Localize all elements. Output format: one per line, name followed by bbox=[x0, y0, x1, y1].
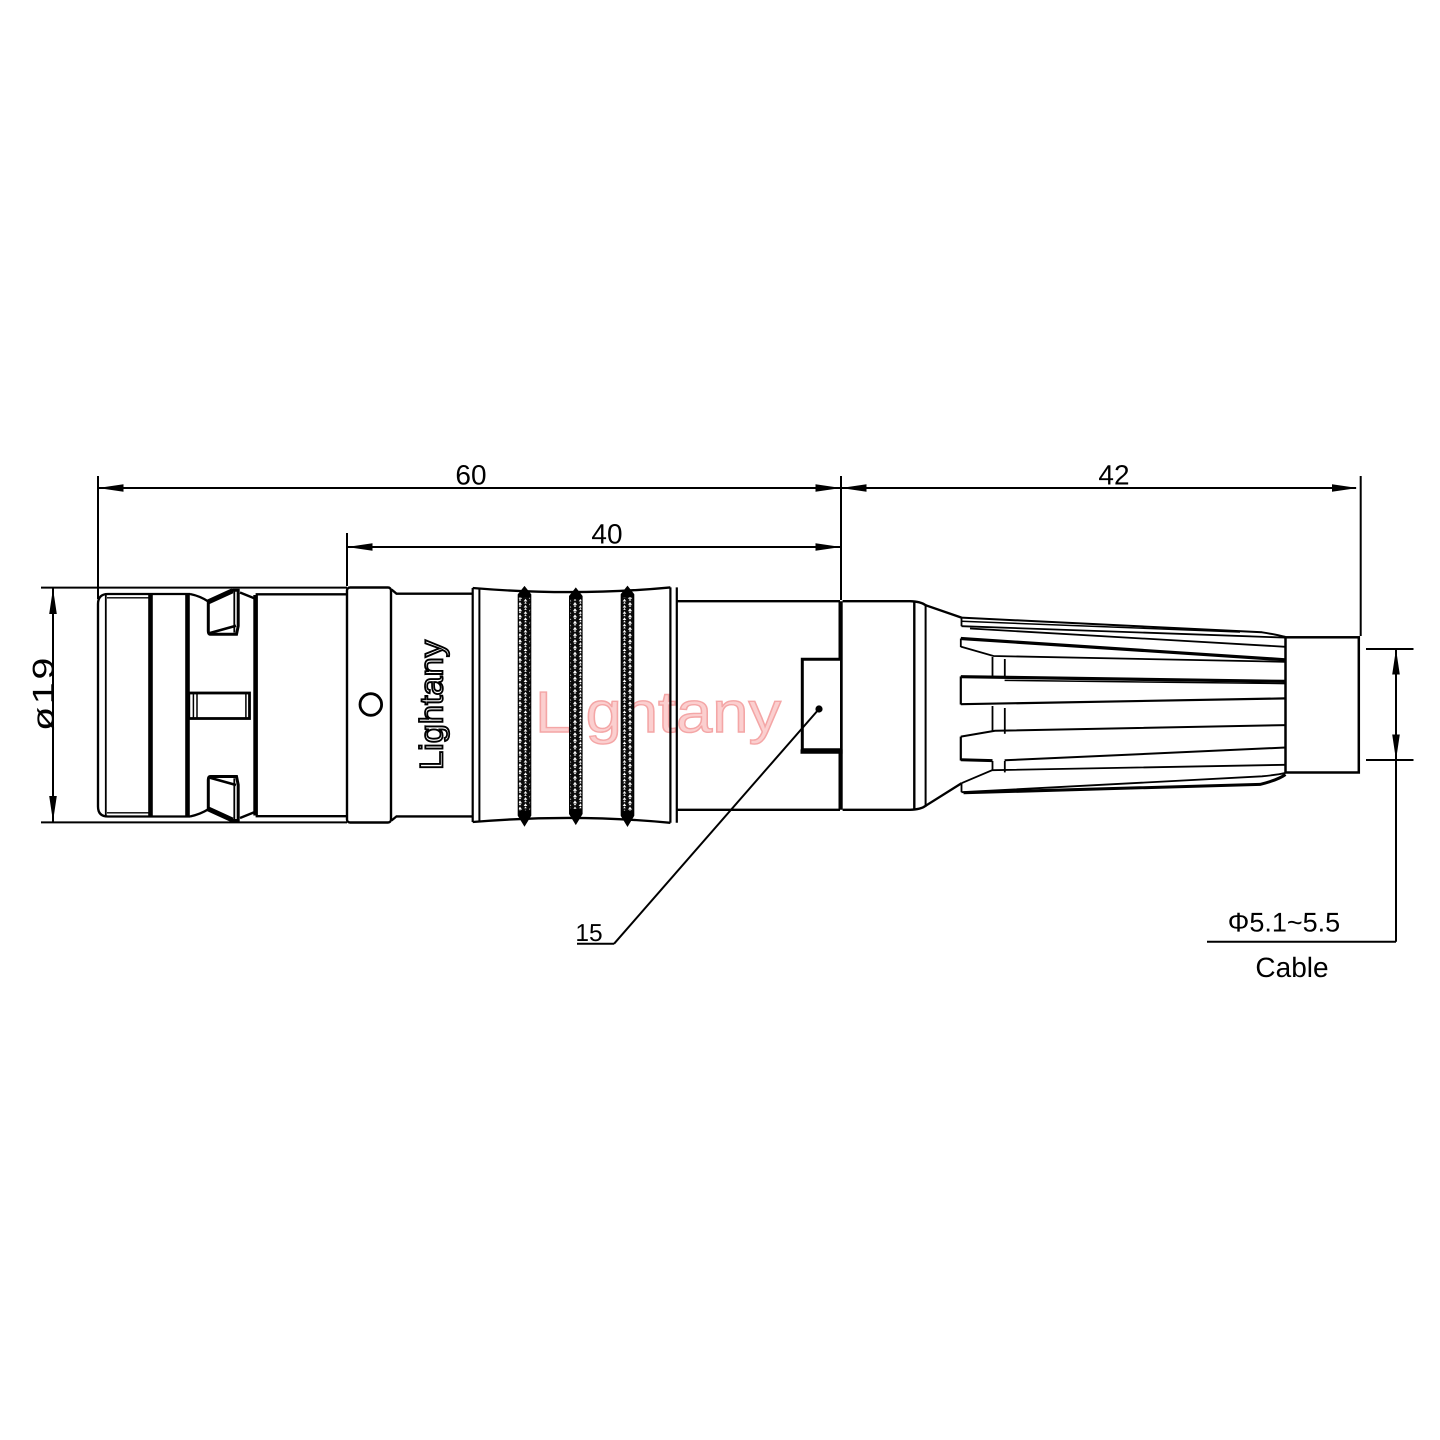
svg-text:Φ5.1~5.5: Φ5.1~5.5 bbox=[1228, 908, 1340, 938]
svg-text:42: 42 bbox=[1098, 460, 1129, 491]
svg-text:Cable: Cable bbox=[1255, 952, 1328, 983]
svg-text:ø19: ø19 bbox=[28, 655, 61, 731]
svg-text:40: 40 bbox=[591, 519, 622, 550]
svg-text:Lightany: Lightany bbox=[414, 639, 450, 770]
svg-text:60: 60 bbox=[455, 460, 486, 491]
svg-text:15: 15 bbox=[575, 920, 602, 947]
